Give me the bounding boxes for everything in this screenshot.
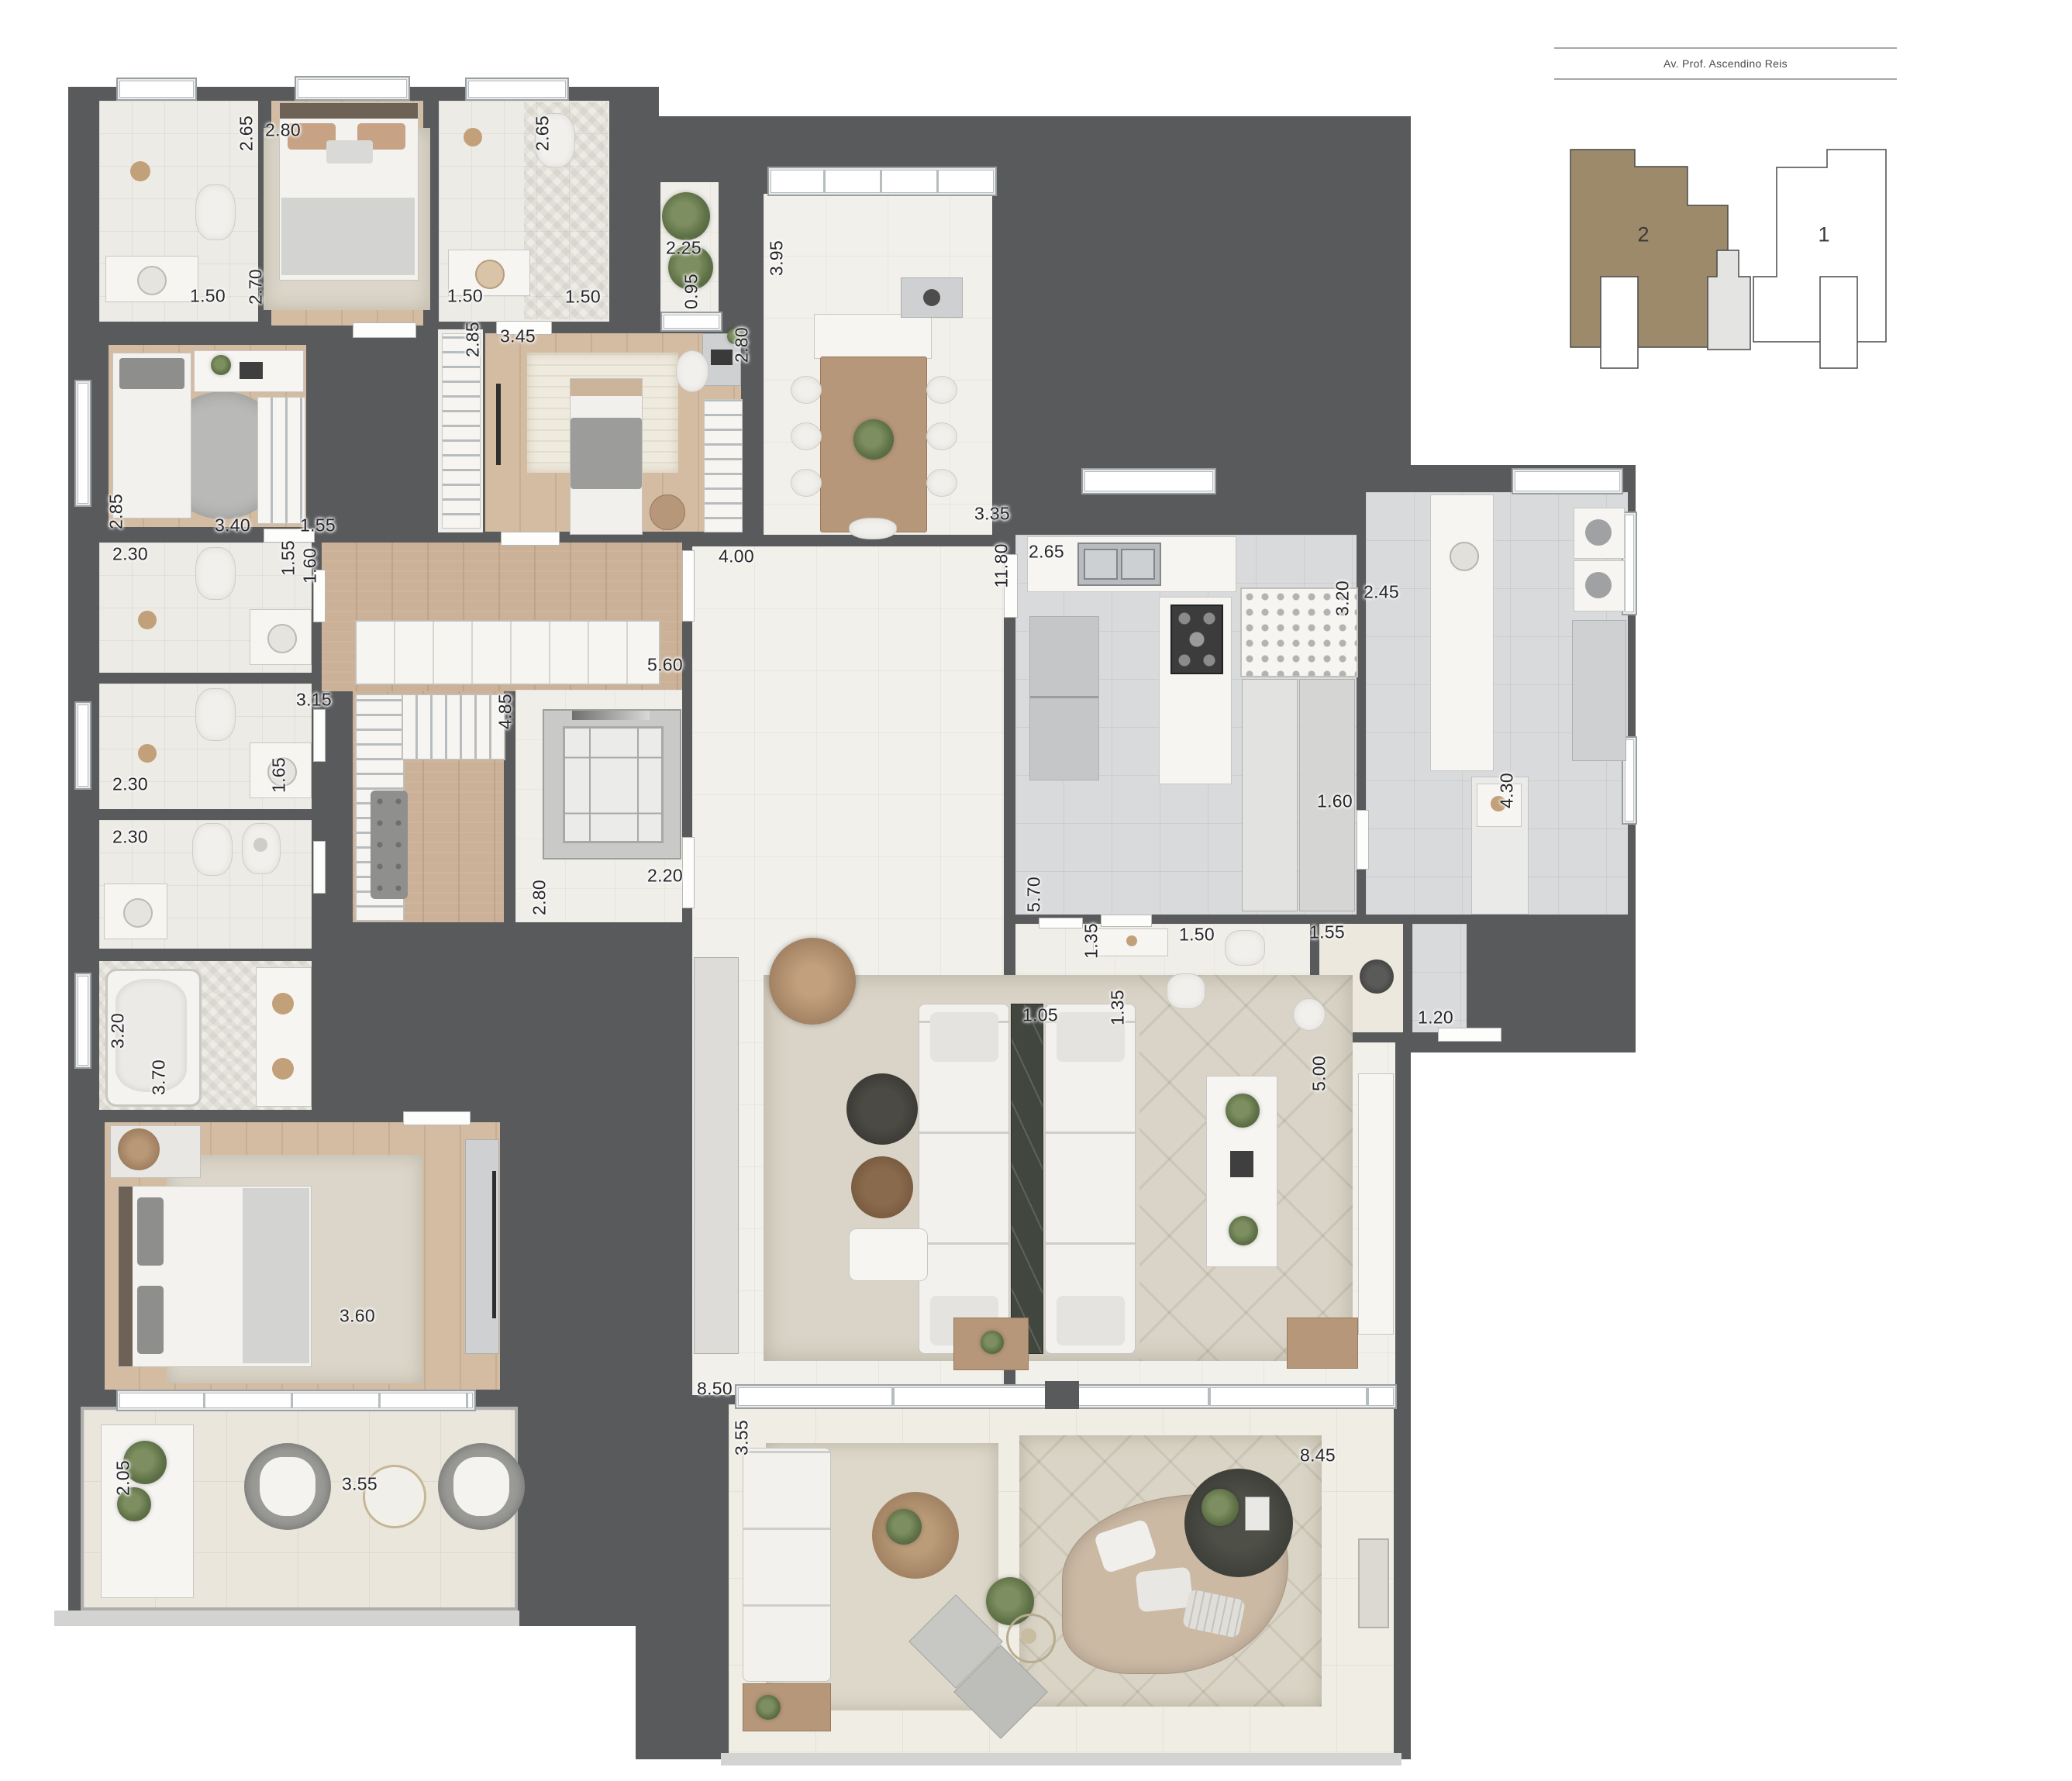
desk-icon (194, 350, 304, 392)
bench-icon (1358, 1073, 1394, 1335)
dimension-label: 3.35 (974, 505, 1010, 523)
dimension-label: 2.70 (247, 269, 265, 305)
dimension-label: 2.30 (112, 828, 148, 846)
window (74, 380, 91, 507)
door (353, 322, 416, 338)
robot-vacuum-icon (1360, 959, 1394, 994)
dimension-label: 2.30 (112, 546, 148, 563)
door (682, 837, 695, 908)
console-table-icon (1011, 1004, 1043, 1354)
window (74, 973, 91, 1069)
fire-pit-icon (1006, 1614, 1056, 1663)
buffet-icon (814, 314, 932, 359)
side-table-icon (650, 494, 685, 530)
dimension-label: 1.55 (280, 540, 298, 576)
dimension-label: 5.70 (1026, 877, 1043, 912)
key-plan-unit-1-label: 1 (1818, 225, 1829, 246)
window (660, 312, 722, 332)
sink-slab-icon (1093, 928, 1168, 956)
coffee-table-icon (846, 1073, 918, 1145)
dimension-label: 8.50 (697, 1380, 733, 1398)
dimension-label: 4.00 (719, 548, 754, 566)
dimension-label: 1.60 (1317, 793, 1353, 811)
desk-chair-icon (676, 350, 708, 392)
chair-icon (926, 422, 957, 450)
toilet-icon (195, 547, 236, 600)
shower-head-icon (130, 161, 150, 181)
dimension-label: 3.95 (768, 240, 786, 276)
laundry-counter-icon (1430, 494, 1494, 771)
chair-icon (791, 422, 822, 450)
dimension-label: 3.20 (1334, 580, 1352, 616)
floor-plan-screenshot: 2.652.802.651.502.701.501.502.250.953.95… (0, 0, 2072, 1781)
key-plan: Av. Prof. Ascendino Reis 2 1 (1546, 45, 1905, 377)
dimension-label: 4.85 (497, 694, 515, 729)
dimension-label: 2.65 (238, 115, 256, 151)
dining-table-icon (820, 357, 927, 532)
key-plan-graphic (1546, 45, 1905, 377)
round-table-icon (769, 938, 856, 1025)
side-table-icon (743, 1683, 831, 1731)
dimension-label: 3.45 (500, 328, 536, 346)
island-counter-icon (1206, 1076, 1277, 1267)
dimension-label: 5.60 (647, 656, 683, 674)
tv-sideboard-icon (465, 1139, 499, 1354)
door (403, 1111, 471, 1125)
vanity-icon (104, 884, 167, 939)
dimension-label: 8.45 (1300, 1447, 1336, 1465)
toilet-icon (1225, 930, 1265, 966)
dimension-label: 2.20 (647, 867, 683, 885)
terrace-ledge (721, 1753, 1401, 1765)
plant-icon (662, 192, 710, 240)
window (1512, 468, 1623, 494)
fridge-icon (1029, 616, 1099, 780)
ottoman-icon (849, 1228, 928, 1281)
dimension-label: 2.30 (112, 776, 148, 794)
tv-icon (496, 384, 501, 465)
dimension-label: 2.65 (1029, 543, 1064, 561)
vanity-icon (105, 256, 198, 302)
side-table-icon (1287, 1318, 1358, 1369)
wardrobe-icon (257, 397, 305, 524)
dimension-label: 3.15 (296, 691, 332, 709)
key-plan-street-label: Av. Prof. Ascendino Reis (1546, 57, 1905, 71)
door (1357, 810, 1369, 870)
dimension-label: 2.80 (733, 327, 751, 363)
shower-head-icon (138, 611, 157, 629)
dimension-label: 2.80 (265, 122, 301, 140)
toilet-icon (192, 823, 233, 876)
dimension-label: 1.20 (1418, 1009, 1453, 1027)
washer-icon (1574, 508, 1625, 559)
dimension-label: 5.00 (1311, 1056, 1329, 1091)
sideboard-icon (694, 957, 739, 1354)
balcony-ledge (54, 1610, 519, 1626)
coffee-table-icon (851, 1156, 913, 1218)
chair-icon (791, 469, 822, 497)
cooktop-icon (1170, 605, 1223, 674)
king-bed-icon (118, 1186, 312, 1367)
sink-icon (1293, 998, 1326, 1031)
toilet-icon (195, 184, 236, 240)
kitchen-sink-icon (1077, 543, 1161, 586)
window (295, 76, 410, 101)
key-plan-unit-2-label: 2 (1637, 225, 1649, 246)
chair-icon (849, 518, 897, 539)
shower-head-icon (464, 128, 482, 146)
dimension-label: 1.60 (302, 548, 319, 584)
terrace-center-post (1045, 1381, 1079, 1409)
dimension-label: 3.20 (109, 1013, 127, 1049)
dimension-label: 3.40 (215, 517, 250, 535)
elevator-icon (543, 709, 681, 859)
round-table-icon (1184, 1469, 1293, 1577)
side-table-icon (953, 1318, 1029, 1370)
planter-icon (101, 1424, 194, 1598)
window (465, 78, 569, 101)
dimension-label: 2.45 (1364, 584, 1399, 601)
door (1438, 1028, 1501, 1042)
door (1039, 918, 1083, 928)
dimension-label: 1.35 (1109, 990, 1127, 1025)
bench-icon (371, 791, 408, 899)
door (501, 532, 560, 546)
dimension-label: 1.50 (447, 288, 483, 305)
dimension-label: 2.25 (666, 239, 702, 257)
chair-icon (926, 469, 957, 497)
dimension-label: 1.35 (1083, 923, 1101, 959)
dimension-label: 0.95 (683, 274, 701, 309)
closet-icon (355, 620, 660, 685)
key-plan-balcony-notch (1601, 277, 1638, 368)
armchair-icon (244, 1443, 331, 1530)
key-plan-unit-2 (1570, 150, 1728, 347)
wardrobe-icon (704, 399, 743, 532)
dimension-label: 1.55 (300, 517, 336, 535)
cabinet-icon (1572, 620, 1626, 761)
pantry-icon (1242, 679, 1298, 911)
dimension-label: 3.55 (342, 1476, 378, 1493)
dimension-label: 1.50 (1179, 926, 1215, 944)
dimension-label: 1.50 (565, 288, 601, 306)
plant-icon (211, 355, 231, 375)
dryer-icon (1574, 560, 1625, 611)
double-vanity-icon (256, 967, 312, 1107)
chair-icon (791, 376, 822, 404)
door (313, 709, 326, 762)
window (116, 78, 197, 101)
toilet-icon (1167, 973, 1205, 1009)
dimension-label: 2.85 (108, 494, 126, 529)
dimension-label: 11.80 (993, 543, 1011, 587)
toilet-icon (195, 688, 236, 741)
door (1101, 915, 1152, 927)
wardrobe-icon (442, 333, 481, 529)
window (767, 167, 997, 196)
dimension-label: 2.85 (464, 322, 482, 357)
armchair-icon (438, 1443, 525, 1530)
sliding-door-master-balcony (116, 1390, 476, 1411)
bidet-icon (242, 823, 281, 874)
door (682, 550, 695, 622)
dimension-label: 2.05 (115, 1460, 133, 1496)
dimension-label: 2.65 (534, 115, 552, 151)
single-bed-icon (570, 378, 643, 535)
chair-icon (926, 376, 957, 404)
outdoor-sofa-icon (743, 1448, 831, 1682)
dimension-label: 1.55 (1309, 924, 1345, 942)
dimension-label: 3.70 (150, 1059, 168, 1095)
dimension-label: 1.05 (1022, 1007, 1058, 1025)
sofa-icon (1045, 1004, 1136, 1354)
dimension-label: 4.30 (1498, 773, 1516, 808)
window (74, 701, 91, 790)
closet-icon (402, 694, 505, 760)
coffee-station-icon (901, 277, 963, 318)
coffee-table-icon (872, 1492, 959, 1579)
wall-art-icon (1358, 1538, 1389, 1628)
key-plan-balcony-notch (1820, 277, 1857, 368)
window (1081, 468, 1216, 494)
dimension-label: 1.50 (190, 288, 226, 305)
shower-head-icon (138, 744, 157, 763)
door (313, 841, 326, 894)
dimension-label: 3.55 (733, 1420, 751, 1455)
dimension-label: 3.60 (340, 1307, 375, 1325)
sofa-icon (919, 1004, 1009, 1354)
dimension-label: 2.80 (531, 880, 549, 915)
round-mirror-icon (118, 1128, 160, 1170)
dimension-label: 1.65 (271, 757, 288, 793)
vanity-icon (250, 609, 312, 665)
